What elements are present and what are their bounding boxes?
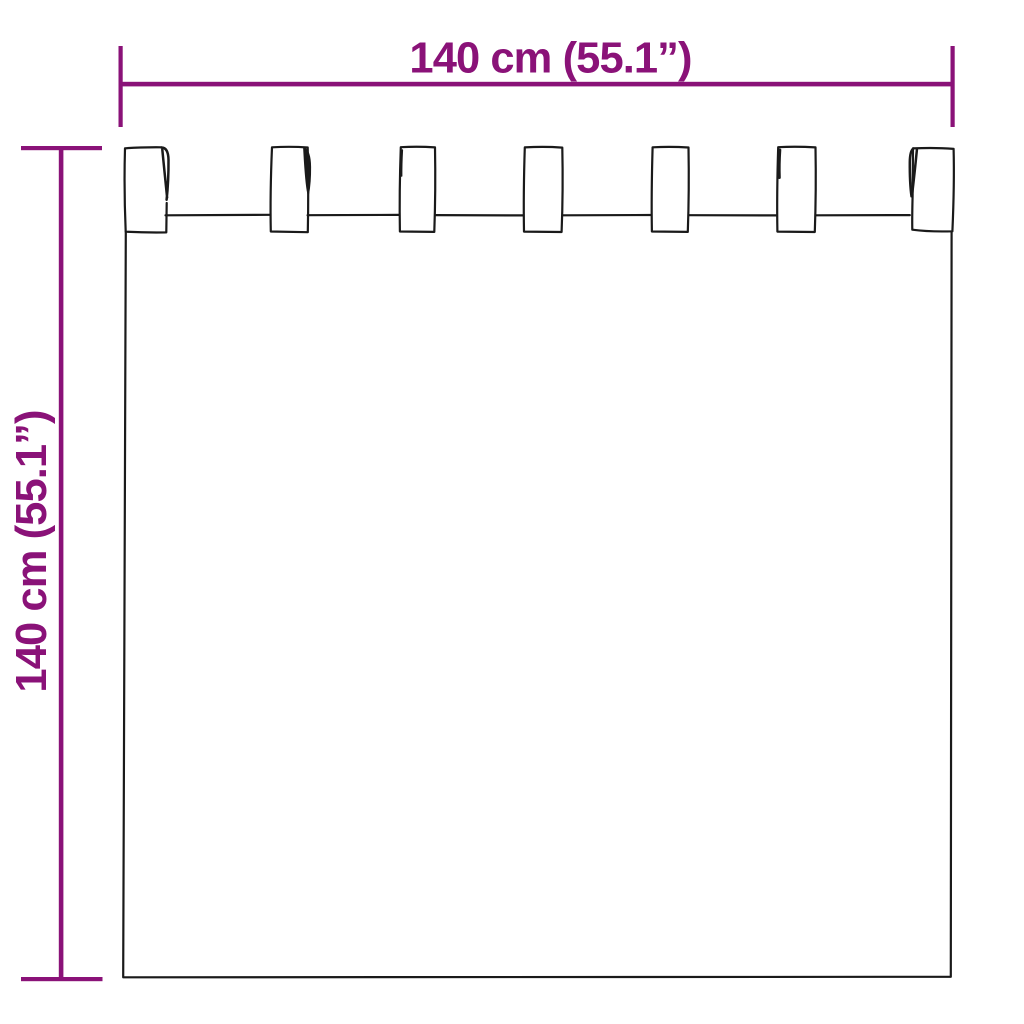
svg-text:140 cm (55.1”): 140 cm (55.1”) — [409, 35, 691, 83]
svg-text:140 cm (55.1”): 140 cm (55.1”) — [8, 410, 56, 692]
